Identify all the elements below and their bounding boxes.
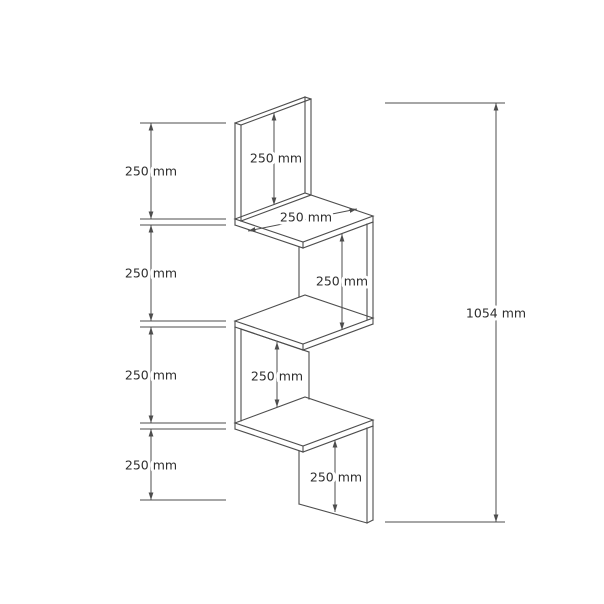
dim-label-left-3: 250 mm xyxy=(125,368,177,383)
drawing-canvas: 250 mm 250 mm 250 mm 250 mm 250 mm 250 m… xyxy=(0,0,604,604)
dim-label-lower-gap: 250 mm xyxy=(251,369,303,384)
dimension-lines xyxy=(140,103,505,522)
dim-label-back-panel-height: 250 mm xyxy=(250,151,302,166)
dim-label-left-1: 250 mm xyxy=(125,164,177,179)
dim-label-upper-gap: 250 mm xyxy=(316,274,368,289)
shelf-technical-drawing: 250 mm 250 mm 250 mm 250 mm 250 mm 250 m… xyxy=(0,0,604,604)
middle-shelf xyxy=(235,295,373,350)
dim-label-left-4: 250 mm xyxy=(125,458,177,473)
dim-label-bottom-panel: 250 mm xyxy=(310,470,362,485)
dim-label-left-2: 250 mm xyxy=(125,266,177,281)
dimension-labels: 250 mm 250 mm 250 mm 250 mm 250 mm 250 m… xyxy=(125,151,526,485)
dim-label-shelf-depth: 250 mm xyxy=(280,210,332,225)
dim-label-overall-height: 1054 mm xyxy=(466,306,526,321)
left-dimension-chain xyxy=(140,123,226,500)
bottom-shelf xyxy=(235,397,373,452)
